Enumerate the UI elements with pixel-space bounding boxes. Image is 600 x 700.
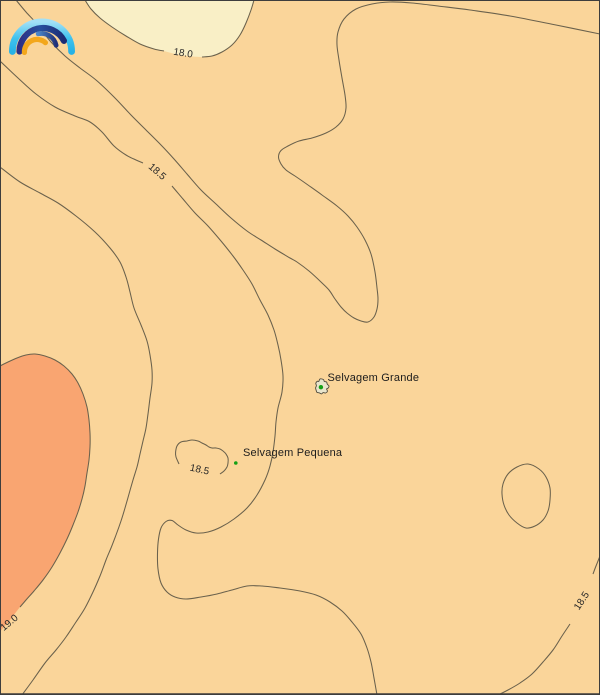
svg-text:Selvagem Grande: Selvagem Grande [328, 372, 420, 384]
svg-text:Selvagem Pequena: Selvagem Pequena [243, 447, 343, 459]
